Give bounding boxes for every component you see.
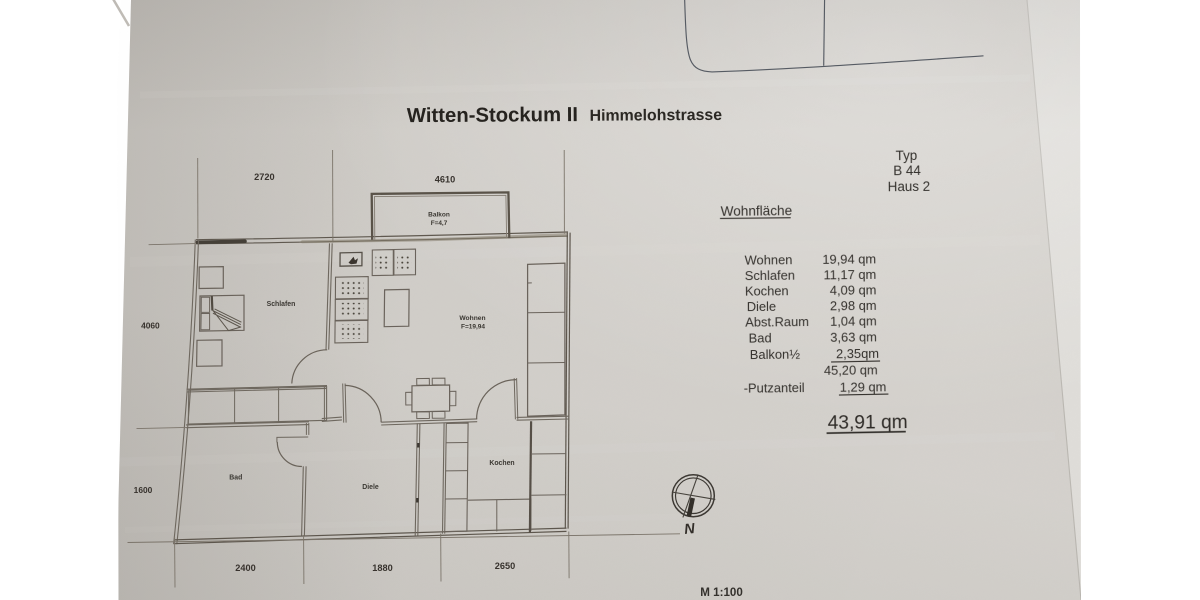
svg-text:Abst.Raum: Abst.Raum	[745, 314, 809, 330]
svg-text:Haus 2: Haus 2	[888, 179, 931, 194]
svg-text:4610: 4610	[435, 175, 455, 185]
svg-text:Wohnen: Wohnen	[745, 252, 793, 267]
svg-text:Balkon½: Balkon½	[750, 347, 801, 362]
svg-text:Wohnen: Wohnen	[459, 315, 485, 322]
svg-text:Schlafen: Schlafen	[267, 301, 296, 308]
svg-text:19,94 qm: 19,94 qm	[822, 252, 876, 268]
svg-text:Wohnfläche: Wohnfläche	[721, 203, 793, 219]
svg-text:Kochen: Kochen	[489, 460, 514, 467]
svg-text:2,98 qm: 2,98 qm	[830, 298, 877, 313]
svg-text:3,63 qm: 3,63 qm	[830, 329, 877, 344]
svg-text:Typ: Typ	[896, 148, 918, 163]
svg-text:1880: 1880	[372, 563, 392, 573]
svg-text:Balkon: Balkon	[428, 212, 450, 219]
svg-text:Schlafen: Schlafen	[745, 268, 795, 283]
svg-text:M 1:100: M 1:100	[700, 586, 743, 599]
svg-text:F=19,94: F=19,94	[461, 324, 485, 331]
svg-text:43,91 qm: 43,91 qm	[828, 412, 908, 434]
svg-text:2400: 2400	[235, 563, 255, 573]
svg-text:2,35qm: 2,35qm	[836, 346, 879, 361]
svg-text:Diele: Diele	[362, 484, 379, 491]
svg-text:2650: 2650	[495, 561, 515, 571]
svg-text:Witten-Stockum II: Witten-Stockum II	[407, 104, 578, 127]
svg-text:1,04 qm: 1,04 qm	[830, 313, 877, 328]
svg-text:2720: 2720	[254, 172, 274, 182]
svg-text:Himmelohstrasse: Himmelohstrasse	[590, 107, 723, 125]
svg-text:Bad: Bad	[749, 330, 772, 345]
svg-text:Bad: Bad	[229, 475, 242, 482]
svg-text:-Putzanteil: -Putzanteil	[744, 380, 805, 396]
svg-text:B 44: B 44	[893, 163, 921, 178]
svg-text:45,20 qm: 45,20 qm	[824, 362, 878, 378]
svg-text:Diele: Diele	[747, 299, 777, 314]
svg-text:4060: 4060	[141, 320, 160, 330]
svg-text:11,17 qm: 11,17 qm	[823, 267, 876, 283]
svg-text:Kochen: Kochen	[745, 283, 789, 298]
svg-text:1,29 qm: 1,29 qm	[840, 379, 887, 394]
svg-text:4,09 qm: 4,09 qm	[830, 282, 877, 297]
svg-text:1600: 1600	[134, 485, 153, 495]
svg-text:F=4,7: F=4,7	[431, 220, 448, 227]
